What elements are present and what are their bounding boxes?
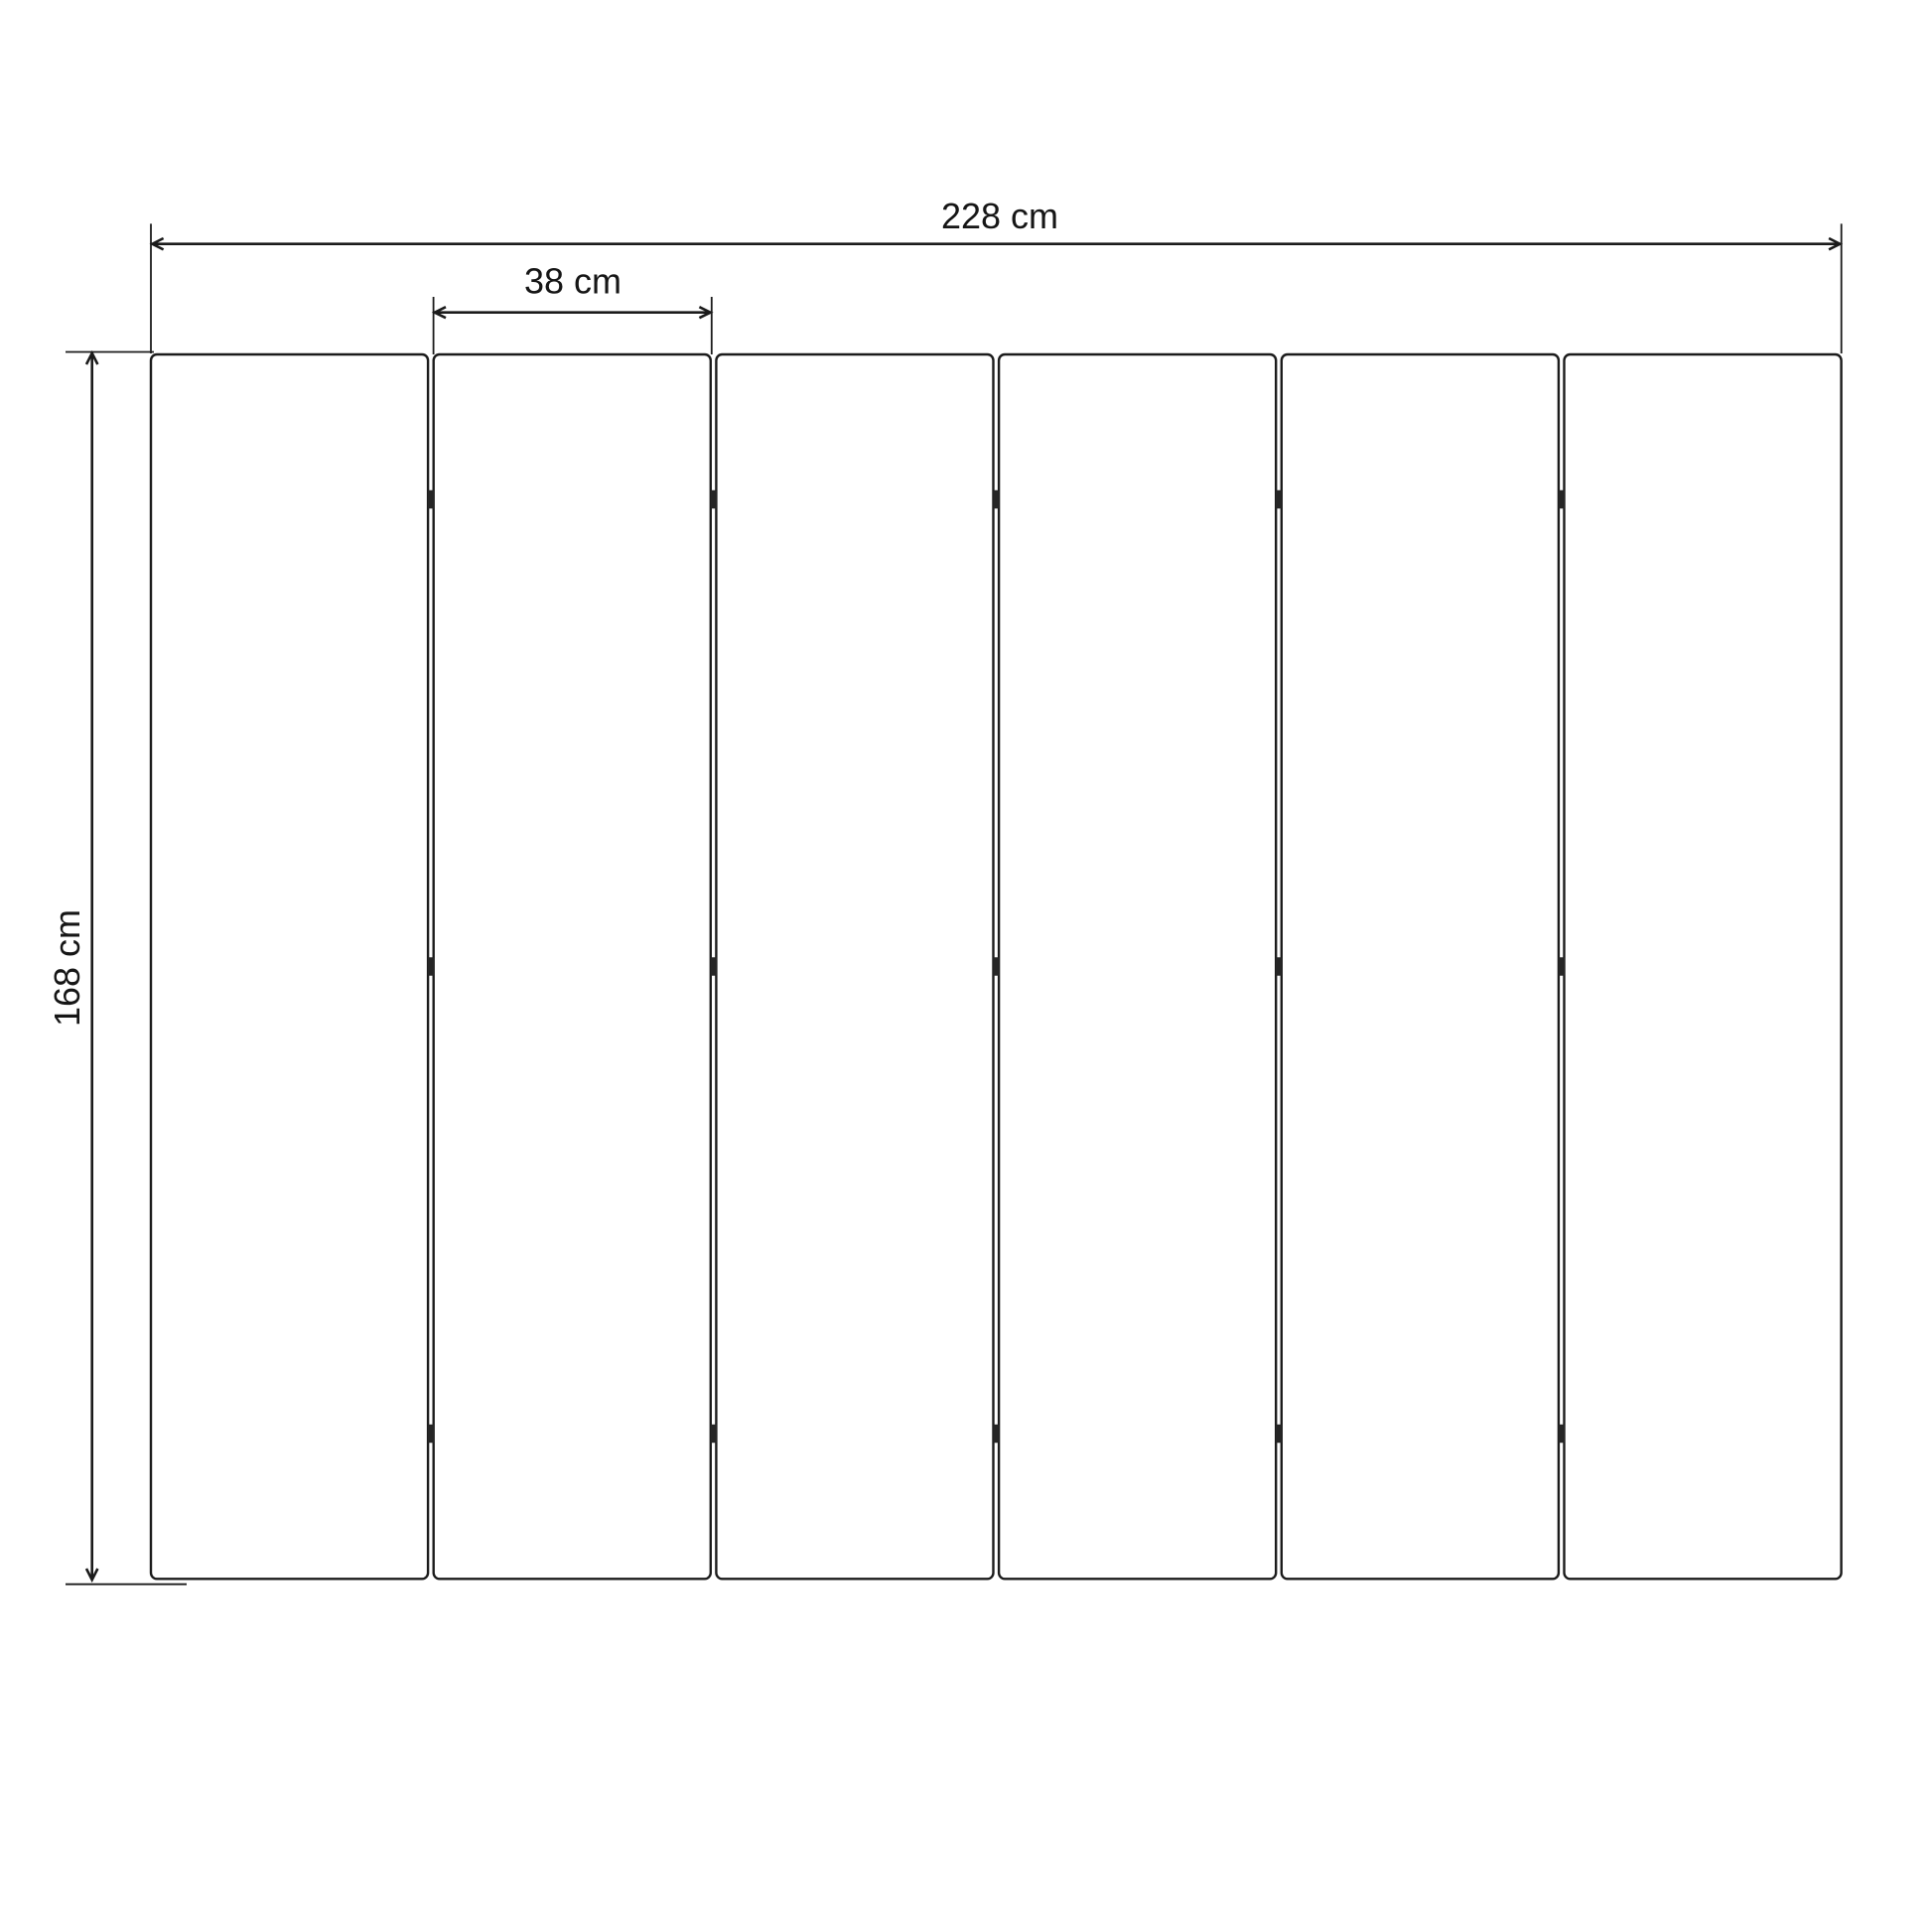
svg-text:228 cm: 228 cm	[941, 196, 1058, 236]
svg-text:168 cm: 168 cm	[47, 909, 87, 1027]
svg-text:38 cm: 38 cm	[524, 261, 621, 302]
